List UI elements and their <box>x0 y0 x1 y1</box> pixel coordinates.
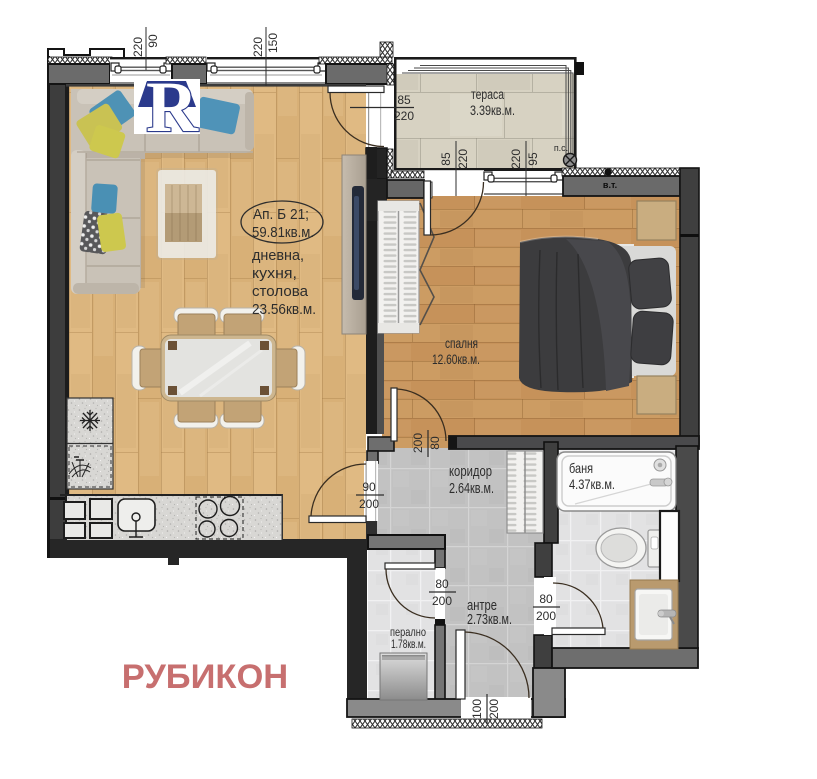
svg-text:220: 220 <box>131 37 145 57</box>
svg-text:столова: столова <box>252 284 309 300</box>
svg-text:РУБИКОН: РУБИКОН <box>122 658 288 696</box>
svg-text:80: 80 <box>435 577 449 591</box>
svg-text:12.60кв.м.: 12.60кв.м. <box>432 351 480 367</box>
svg-text:п.с.: п.с. <box>554 143 568 153</box>
svg-text:85: 85 <box>439 152 453 166</box>
svg-text:в.т.: в.т. <box>603 180 617 190</box>
svg-text:тераса: тераса <box>471 87 504 102</box>
svg-text:кухня,: кухня, <box>252 266 297 282</box>
svg-text:90: 90 <box>146 34 160 48</box>
svg-text:220: 220 <box>509 149 523 169</box>
svg-text:220: 220 <box>456 149 470 169</box>
svg-text:1.78кв.м.: 1.78кв.м. <box>391 639 426 651</box>
svg-text:4.37кв.м.: 4.37кв.м. <box>569 476 615 492</box>
svg-text:150: 150 <box>266 33 280 53</box>
svg-text:59.81кв.м.: 59.81кв.м. <box>252 225 314 241</box>
svg-text:баня: баня <box>569 460 593 476</box>
svg-text:80: 80 <box>539 592 553 606</box>
svg-text:23.56кв.м.: 23.56кв.м. <box>252 302 316 318</box>
svg-text:3.39кв.м.: 3.39кв.м. <box>470 102 515 118</box>
svg-text:R: R <box>146 67 199 147</box>
svg-text:95: 95 <box>526 152 540 166</box>
svg-text:220: 220 <box>251 37 265 57</box>
svg-text:200: 200 <box>359 497 379 511</box>
svg-text:90: 90 <box>362 480 376 494</box>
svg-text:80: 80 <box>428 436 442 450</box>
svg-text:200: 200 <box>536 609 556 623</box>
svg-text:100: 100 <box>470 699 484 719</box>
svg-text:85: 85 <box>397 93 411 107</box>
svg-text:220: 220 <box>394 109 414 123</box>
svg-text:Ап. Б 21;: Ап. Б 21; <box>253 207 309 223</box>
svg-text:2.64кв.м.: 2.64кв.м. <box>449 481 494 497</box>
svg-text:2.73кв.м.: 2.73кв.м. <box>467 612 512 628</box>
svg-text:200: 200 <box>432 594 452 608</box>
svg-text:200: 200 <box>411 433 425 453</box>
svg-text:200: 200 <box>487 699 501 719</box>
svg-text:дневна,: дневна, <box>252 248 304 264</box>
svg-text:коридор: коридор <box>449 464 492 480</box>
svg-text:перално: перално <box>390 627 426 639</box>
svg-text:спалня: спалня <box>445 335 478 351</box>
